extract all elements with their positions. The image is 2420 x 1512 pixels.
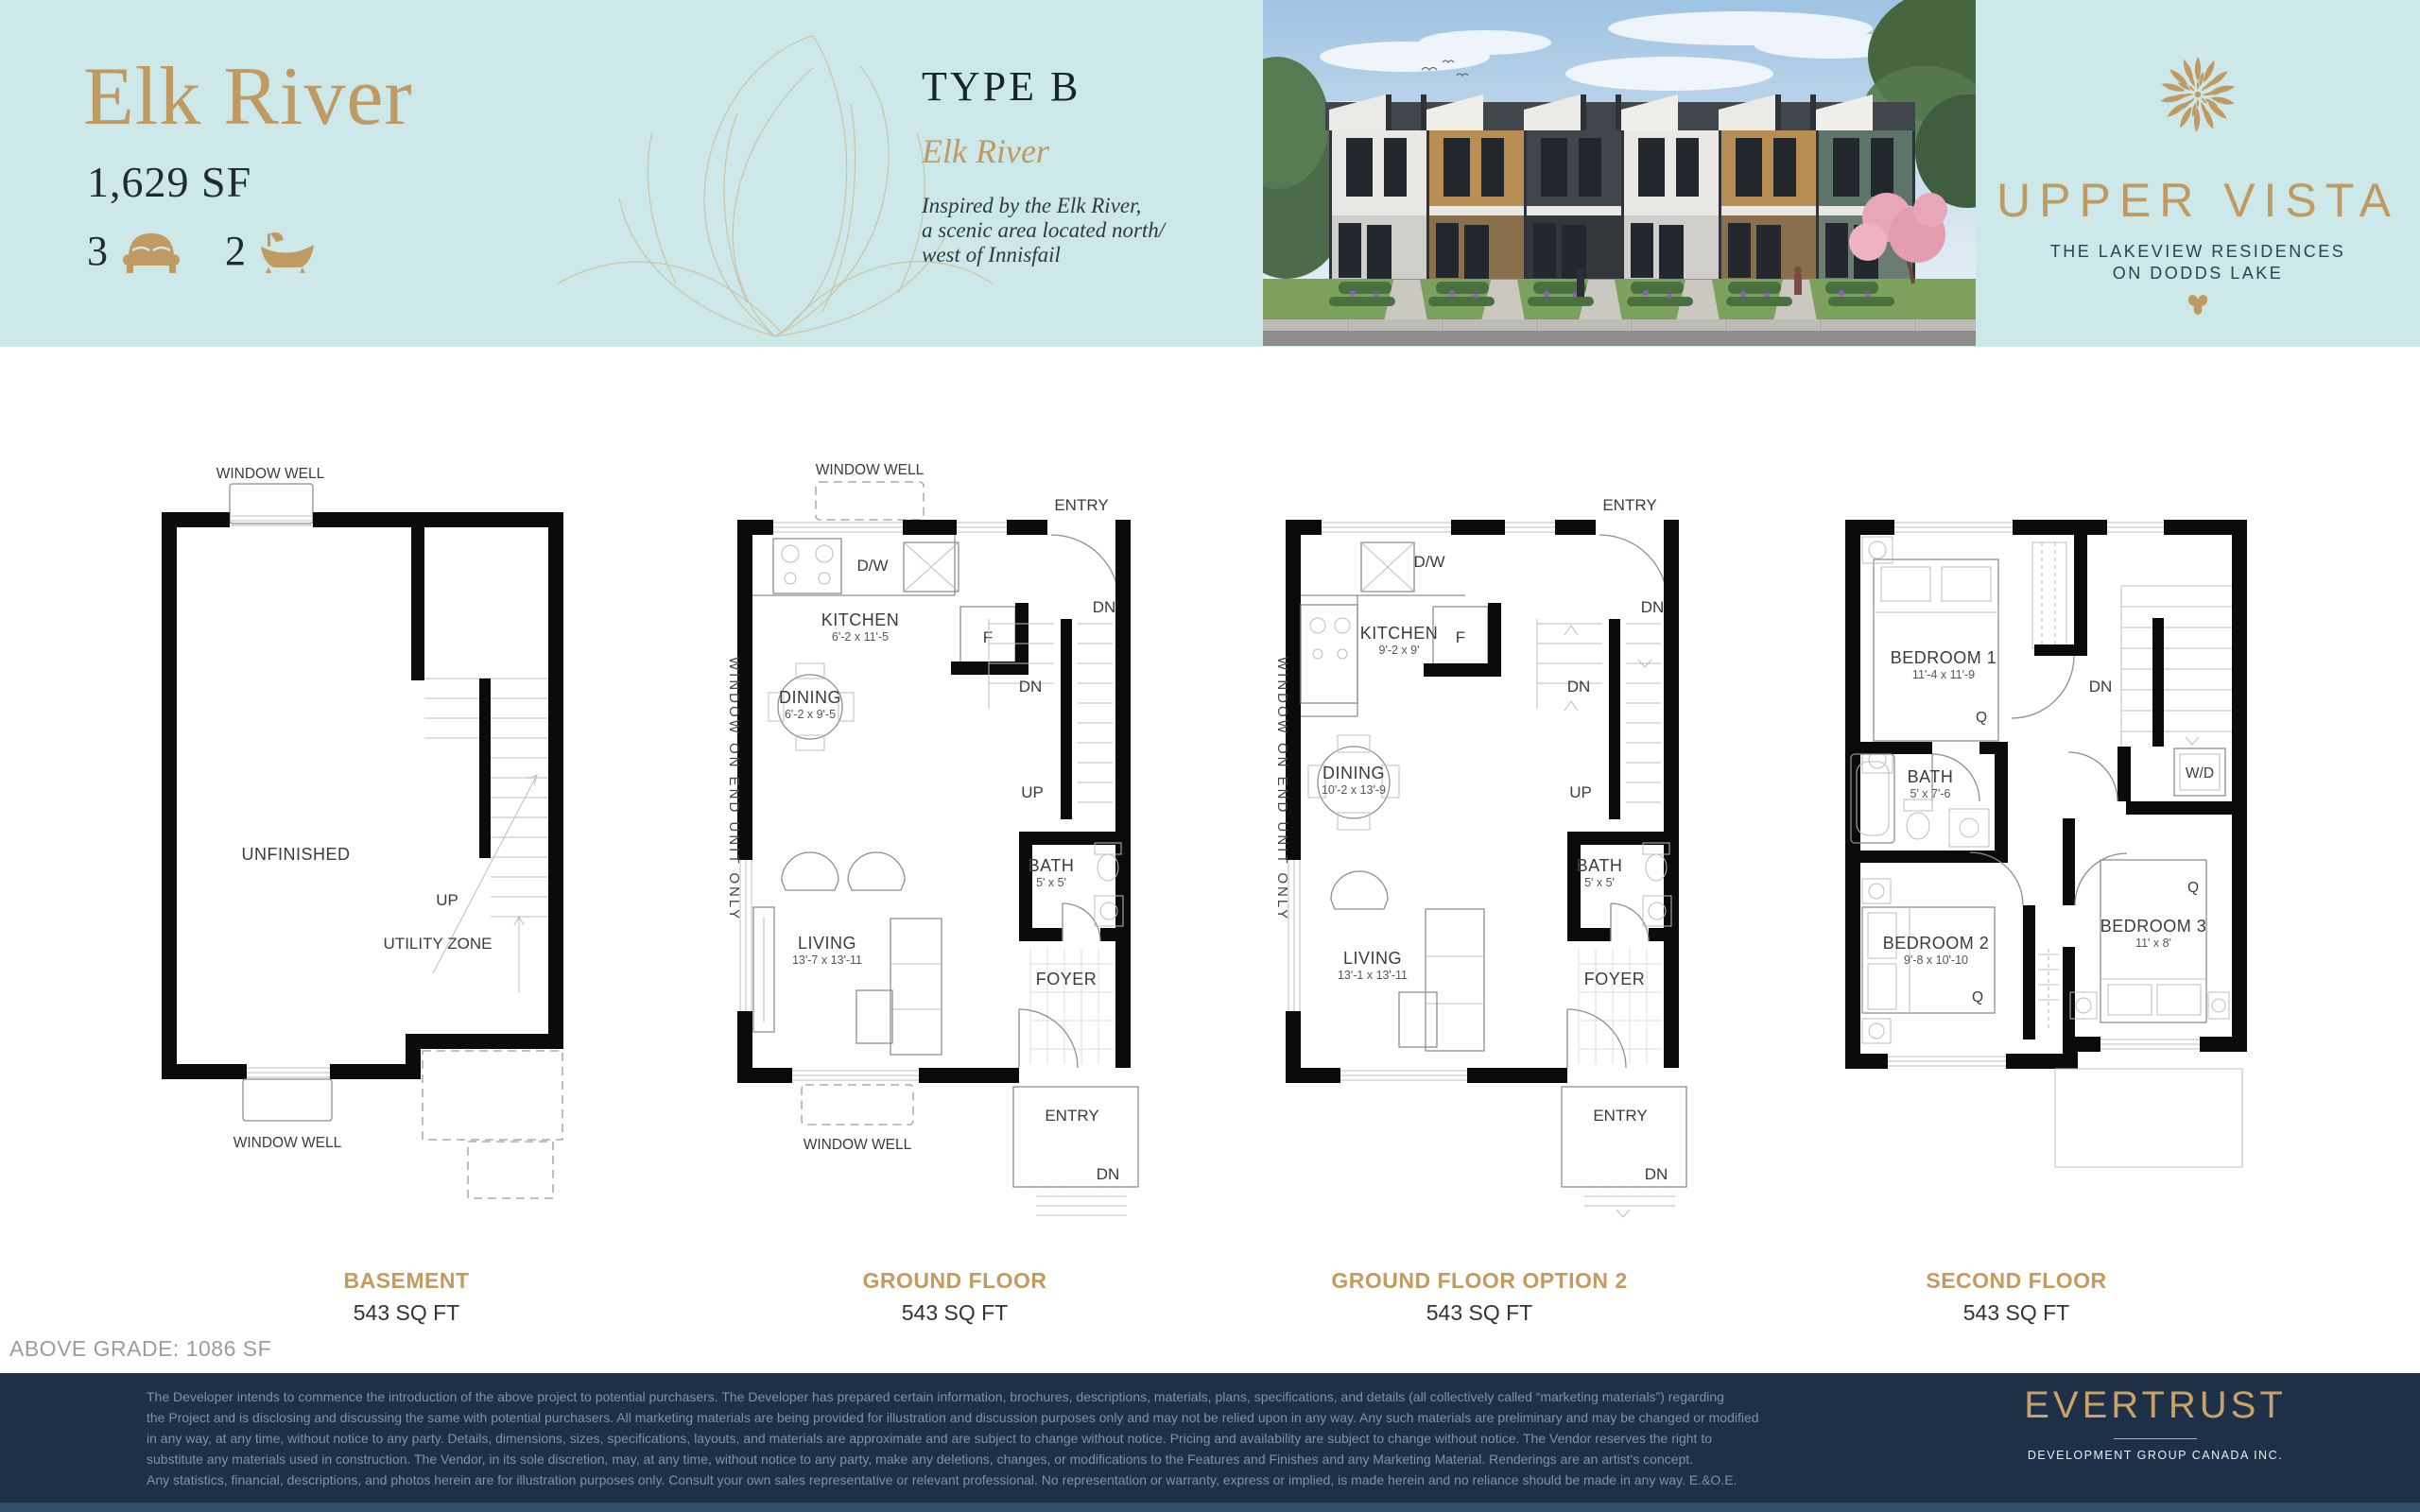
caption-ground-floor-option2: GROUND FLOOR OPTION 2 543 SQ FT — [1243, 1268, 1716, 1326]
room-dim-living: 13'-1 x 13'-11 — [1338, 969, 1408, 982]
bath-count: 2 — [225, 227, 246, 275]
dishwasher-label: D/W — [856, 557, 888, 575]
room-dim-kitchen: 9'-2 x 9' — [1379, 644, 1420, 657]
room-label-bath: BATH — [1577, 856, 1623, 875]
floorplan-second-floor: BEDROOM 1 11'-4 x 11'-9 Q DN W/D BATH 5'… — [1838, 463, 2255, 1219]
evertrust-subtitle: DEVELOPMENT GROUP CANADA INC. — [2014, 1449, 2297, 1462]
brand-tagline-line: ON DODDS LAKE — [1976, 263, 2420, 284]
up-label: UP — [436, 891, 458, 909]
type-description: Inspired by the Elk River, a scenic area… — [922, 194, 1165, 267]
room-dim-kitchen: 6'-2 x 11'-5 — [832, 630, 889, 644]
room-label-dining: DINING — [1322, 764, 1385, 782]
caption-basement: BASEMENT 543 SQ FT — [170, 1268, 643, 1326]
dn-label: DN — [1641, 598, 1665, 616]
room-label-living: LIVING — [1343, 949, 1402, 968]
queen-bed-label: Q — [1976, 710, 1987, 726]
type-description-line: Inspired by the Elk River, — [922, 194, 1165, 218]
room-dim-living: 13'-7 x 13'-11 — [792, 954, 862, 967]
townhouse-building — [1325, 94, 1915, 285]
room-dim-bath: 5' x 7'-6 — [1910, 787, 1951, 800]
floorplan-ground-floor: WINDOW WELL ENTRY WINDOW ON END UNIT ONL… — [718, 463, 1149, 1219]
brand-name: UPPER VISTA — [1976, 173, 2420, 228]
flower-line-art — [406, 0, 1011, 346]
caption-sqft: 543 SQ FT — [170, 1300, 643, 1326]
room-label-foyer: FOYER — [1036, 970, 1098, 988]
bed-bath-row: 3 2 — [87, 227, 316, 275]
bed-icon — [121, 230, 181, 273]
caption-sqft: 543 SQ FT — [1780, 1300, 2253, 1326]
bottom-accent-strip — [0, 1503, 2420, 1512]
window-well-top-label: WINDOW WELL — [216, 466, 325, 482]
room-label-dining: DINING — [779, 688, 841, 707]
queen-bed-label: Q — [2187, 880, 2199, 896]
evertrust-logo: EVERTRUST — [2014, 1384, 2297, 1427]
unit-area: 1,629 SF — [87, 157, 251, 207]
room-dim-dining: 10'-2 x 13'-9 — [1322, 783, 1386, 797]
room-dim-bedroom2: 9'-8 x 10'-10 — [1904, 954, 1968, 967]
brand-tagline-line: THE LAKEVIEW RESIDENCES — [1976, 241, 2420, 263]
bathtub-icon — [259, 230, 316, 273]
road — [1263, 331, 1976, 346]
washer-dryer-label: W/D — [2186, 765, 2214, 782]
caption-title: BASEMENT — [170, 1268, 643, 1294]
dn-label: DN — [1097, 1165, 1120, 1183]
caption-ground-floor: GROUND FLOOR 543 SQ FT — [718, 1268, 1191, 1326]
caption-second-floor: SECOND FLOOR 543 SQ FT — [1780, 1268, 2253, 1326]
window-note-label: WINDOW ON END UNIT ONLY — [1274, 657, 1290, 921]
hero-photo — [1263, 0, 1976, 346]
entry-top-label: ENTRY — [1054, 496, 1108, 514]
disclaimer-line: substitute any materials used in constru… — [147, 1449, 1759, 1469]
room-dim-bedroom3: 11' x 8' — [2135, 936, 2171, 950]
fridge-label: F — [1456, 628, 1465, 646]
leaf-glyph-icon — [2186, 292, 2210, 317]
type-label: TYPE B — [922, 62, 1165, 111]
unit-name: Elk River — [83, 49, 413, 145]
type-description-line: a scenic area located north/ — [922, 218, 1165, 243]
sidewalk — [1263, 319, 1976, 331]
footer: The Developer intends to commence the in… — [0, 1373, 2420, 1512]
dn-label: DN — [2089, 678, 2113, 696]
above-grade-note: ABOVE GRADE: 1086 SF — [9, 1336, 271, 1362]
room-label-bath: BATH — [1908, 767, 1954, 786]
caption-title: SECOND FLOOR — [1780, 1268, 2253, 1294]
dn-label: DN — [1019, 678, 1043, 696]
entry-bottom-label: ENTRY — [1593, 1107, 1647, 1125]
queen-bed-label: Q — [1972, 989, 1983, 1005]
room-label-bedroom2: BEDROOM 2 — [1883, 934, 1990, 953]
room-label-kitchen: KITCHEN — [1360, 624, 1439, 643]
type-description-line: west of Innisfail — [922, 243, 1165, 267]
room-dim-bath: 5' x 5' — [1584, 876, 1615, 889]
dn-label: DN — [1645, 1165, 1668, 1183]
tree-burst-icon — [2122, 21, 2273, 163]
disclaimer-line: Any statistics, financial, descriptions,… — [147, 1469, 1759, 1490]
dn-label: DN — [1093, 598, 1116, 616]
bed-count: 3 — [87, 227, 108, 275]
up-label: UP — [1021, 783, 1044, 801]
type-subtitle: Elk River — [922, 131, 1165, 171]
room-label-kitchen: KITCHEN — [821, 610, 900, 629]
logo-divider — [2114, 1438, 2197, 1439]
window-well-top-label: WINDOW WELL — [816, 463, 925, 478]
type-block: TYPE B Elk River Inspired by the Elk Riv… — [922, 62, 1165, 267]
brand-tagline: THE LAKEVIEW RESIDENCES ON DODDS LAKE — [1976, 241, 2420, 284]
room-dim-dining: 6'-2 x 9'-5 — [785, 708, 836, 721]
window-note-label: WINDOW ON END UNIT ONLY — [726, 657, 742, 921]
room-label-unfinished: UNFINISHED — [241, 845, 350, 864]
caption-sqft: 543 SQ FT — [1243, 1300, 1716, 1326]
floorplan-basement: WINDOW WELL WINDOW WELL UP UNFINISHED UT… — [154, 463, 571, 1219]
room-label-living: LIVING — [798, 934, 856, 953]
room-dim-bedroom1: 11'-4 x 11'-9 — [1912, 668, 1975, 681]
disclaimer-text: The Developer intends to commence the in… — [147, 1386, 1759, 1490]
evertrust-logo-block: EVERTRUST DEVELOPMENT GROUP CANADA INC. — [2014, 1384, 2297, 1462]
entry-bottom-label: ENTRY — [1045, 1107, 1098, 1125]
room-label-foyer: FOYER — [1584, 970, 1646, 988]
header-band: Elk River 1,629 SF 3 2 TYPE — [0, 0, 2420, 347]
floorplan-ground-floor-option2: ENTRY WINDOW ON END UNIT ONLY D/W F KITC… — [1267, 463, 1702, 1219]
window-well-bottom-label: WINDOW WELL — [804, 1137, 912, 1153]
disclaimer-line: The Developer intends to commence the in… — [147, 1386, 1759, 1407]
caption-title: GROUND FLOOR OPTION 2 — [1243, 1268, 1716, 1294]
window-well-bottom-label: WINDOW WELL — [233, 1135, 342, 1151]
up-label: UP — [1569, 783, 1592, 801]
dishwasher-label: D/W — [1413, 553, 1444, 571]
disclaimer-line: the Project and is disclosing and discus… — [147, 1407, 1759, 1428]
dn-label: DN — [1567, 678, 1591, 696]
room-label-bedroom3: BEDROOM 3 — [2100, 917, 2207, 936]
caption-title: GROUND FLOOR — [718, 1268, 1191, 1294]
room-dim-bath: 5' x 5' — [1036, 876, 1066, 889]
entry-top-label: ENTRY — [1602, 496, 1656, 514]
disclaimer-line: in any way, at any time, without notice … — [147, 1428, 1759, 1449]
room-label-utility-zone: UTILITY ZONE — [384, 935, 493, 953]
room-label-bath: BATH — [1028, 856, 1075, 875]
room-label-bedroom1: BEDROOM 1 — [1891, 648, 1997, 667]
caption-sqft: 543 SQ FT — [718, 1300, 1191, 1326]
brand-logo-block: UPPER VISTA THE LAKEVIEW RESIDENCES ON D… — [1976, 0, 2420, 347]
